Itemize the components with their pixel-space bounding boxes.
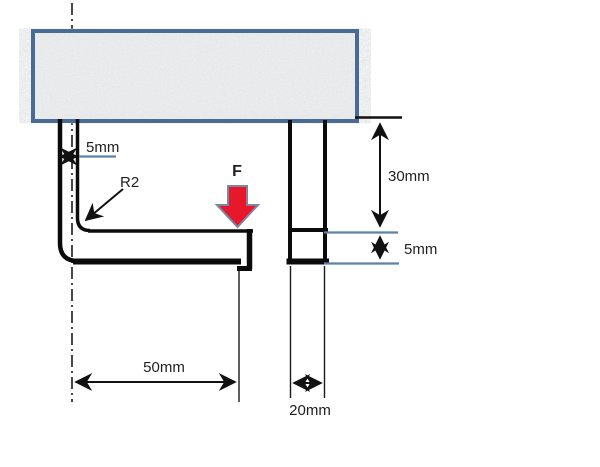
label-force: F (232, 163, 242, 180)
bracket-inner-edge (78, 119, 91, 231)
label-5mm-side: 5mm (404, 241, 437, 258)
support-speckle-texture (35, 33, 355, 119)
fixed-support-block (33, 31, 357, 121)
bracket-outer-edge (60, 119, 78, 261)
label-5mm-front: 5mm (86, 139, 119, 156)
drawing-canvas: 5mm R2 F 30mm 5mm 50mm 20mm (0, 0, 600, 467)
label-30mm: 30mm (388, 168, 430, 185)
label-20mm: 20mm (289, 402, 331, 419)
label-radius: R2 (120, 174, 139, 191)
bracket-side-view (287, 120, 330, 264)
label-50mm: 50mm (143, 359, 185, 376)
engineering-drawing: 5mm R2 F 30mm 5mm 50mm 20mm (0, 0, 600, 467)
force-arrow (217, 186, 258, 227)
radius-leader-arrow (86, 189, 123, 220)
